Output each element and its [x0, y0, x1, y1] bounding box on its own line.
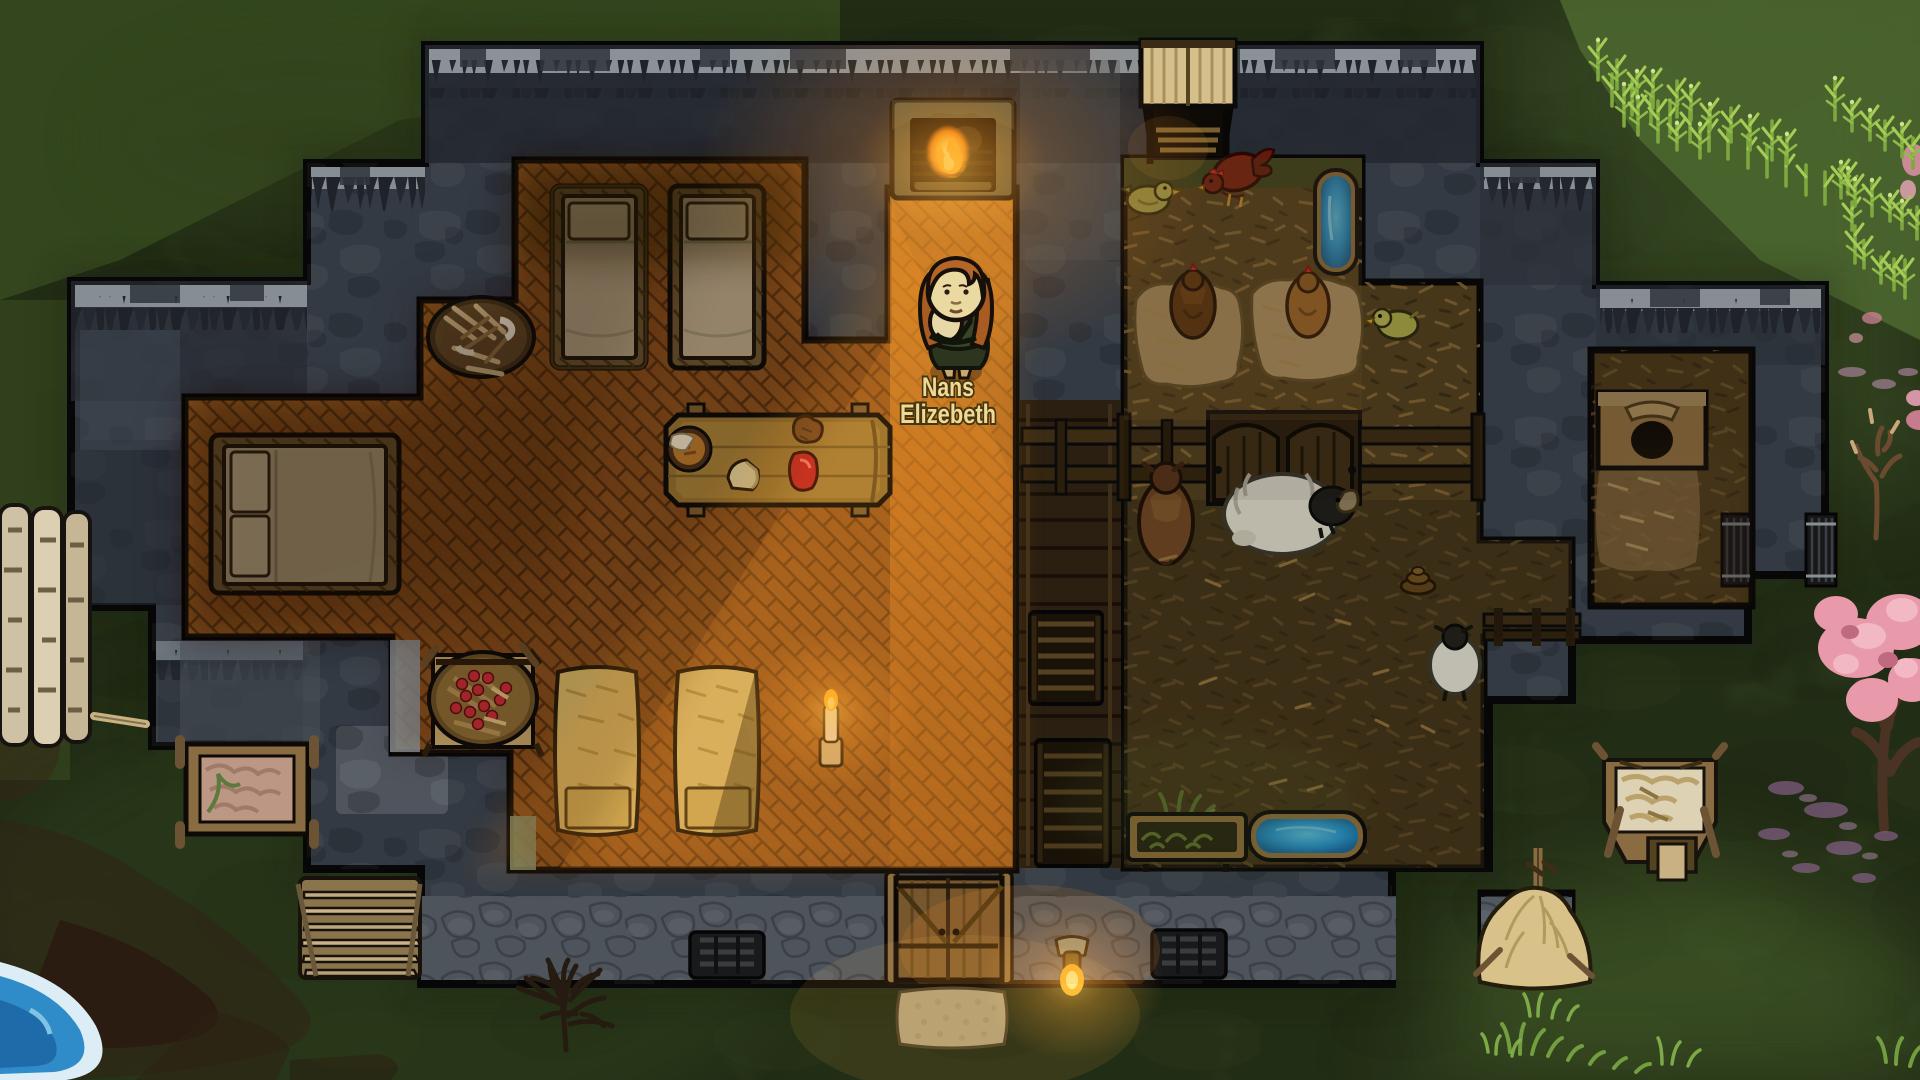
svg-text:Nans: Nans: [922, 372, 974, 402]
svg-text:Elizebeth: Elizebeth: [900, 399, 996, 429]
